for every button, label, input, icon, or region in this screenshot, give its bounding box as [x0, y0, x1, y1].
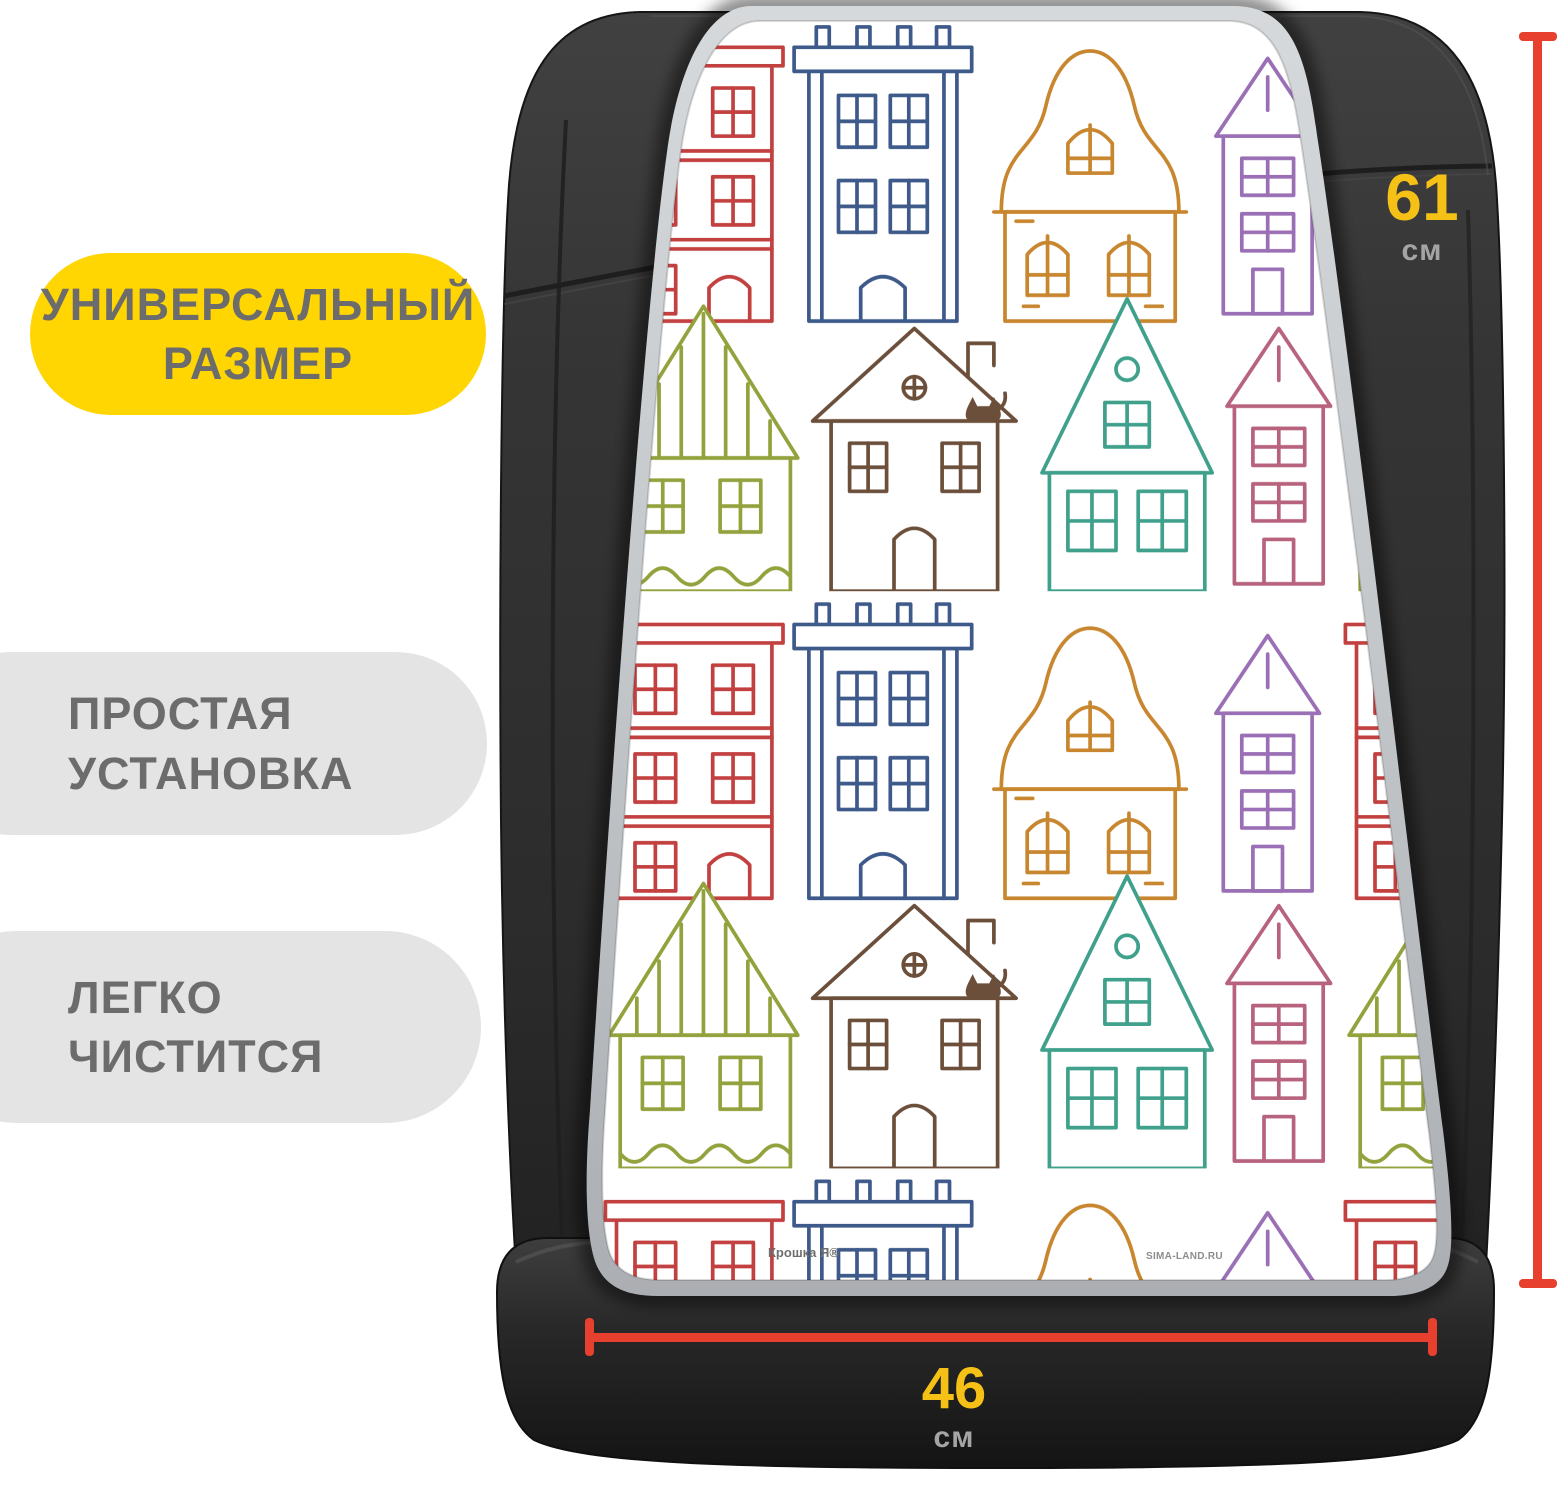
- brand-watermark: Крошка Я®: [768, 1245, 839, 1260]
- badge-easy-clean-line1: ЛЕГКО: [68, 968, 223, 1027]
- height-dimension-cap-bottom: [1519, 1279, 1557, 1288]
- height-dimension-cap-top: [1519, 32, 1557, 41]
- badge-universal-size-line1: УНИВЕРСАЛЬНЫЙ: [41, 275, 475, 334]
- width-dimension-cap-right: [1428, 1318, 1437, 1356]
- seat-cover: [587, 6, 1452, 1296]
- width-dimension-label: 46 см: [890, 1360, 1018, 1453]
- badge-easy-clean-line2: ЧИСТИТСЯ: [68, 1027, 324, 1086]
- height-dimension-line: [1533, 36, 1542, 1284]
- badge-easy-install: ПРОСТАЯ УСТАНОВКА: [0, 652, 487, 835]
- badge-universal-size: УНИВЕРСАЛЬНЫЙ РАЗМЕР: [30, 253, 486, 415]
- width-dimension-cap-left: [585, 1318, 594, 1356]
- badge-easy-install-line1: ПРОСТАЯ: [68, 684, 293, 743]
- cover-pattern: [602, 21, 1436, 1280]
- height-value: 61: [1385, 164, 1458, 230]
- site-watermark: SIMA-LAND.RU: [1146, 1251, 1223, 1262]
- badge-easy-clean: ЛЕГКО ЧИСТИТСЯ: [0, 931, 481, 1123]
- badge-easy-install-line2: УСТАНОВКА: [68, 744, 353, 803]
- product-image: УНИВЕРСАЛЬНЫЙ РАЗМЕР ПРОСТАЯ УСТАНОВКА Л…: [0, 0, 1565, 1502]
- width-value: 46: [922, 1360, 987, 1418]
- height-dimension-label: 61 см: [1358, 164, 1486, 266]
- height-unit: см: [1402, 236, 1443, 266]
- width-dimension-line: [589, 1333, 1432, 1342]
- badge-universal-size-line2: РАЗМЕР: [163, 334, 353, 393]
- width-unit: см: [934, 1423, 975, 1453]
